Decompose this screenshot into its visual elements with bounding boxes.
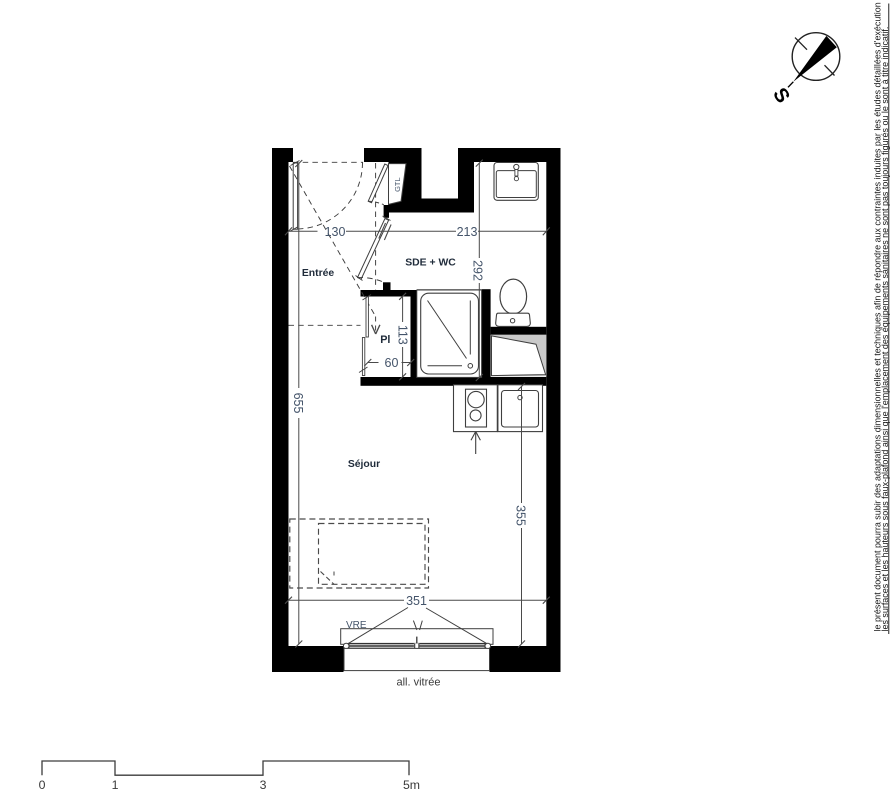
svg-text:0: 0 — [39, 778, 46, 792]
svg-text:GTL: GTL — [393, 177, 402, 192]
svg-text:Entrée: Entrée — [302, 268, 335, 279]
svg-text:5m: 5m — [403, 778, 420, 792]
svg-text:655: 655 — [291, 393, 305, 414]
svg-text:les surfaces et les hauteurs s: les surfaces et les hauteurs sous faux-p… — [880, 27, 890, 632]
svg-text:3: 3 — [260, 778, 267, 792]
svg-text:all. vitrée: all. vitrée — [396, 677, 440, 689]
svg-text:213: 213 — [457, 225, 478, 239]
svg-text:SDE + WC: SDE + WC — [405, 258, 456, 269]
svg-text:351: 351 — [406, 594, 427, 608]
svg-text:355: 355 — [514, 505, 528, 526]
svg-text:130: 130 — [325, 225, 346, 239]
svg-text:1: 1 — [112, 778, 119, 792]
svg-text:VRE: VRE — [346, 620, 367, 631]
svg-text:292: 292 — [471, 260, 485, 281]
svg-text:Séjour: Séjour — [348, 459, 380, 470]
svg-text:60: 60 — [385, 356, 399, 370]
svg-text:113: 113 — [395, 325, 409, 345]
svg-text:Pl: Pl — [380, 334, 390, 346]
